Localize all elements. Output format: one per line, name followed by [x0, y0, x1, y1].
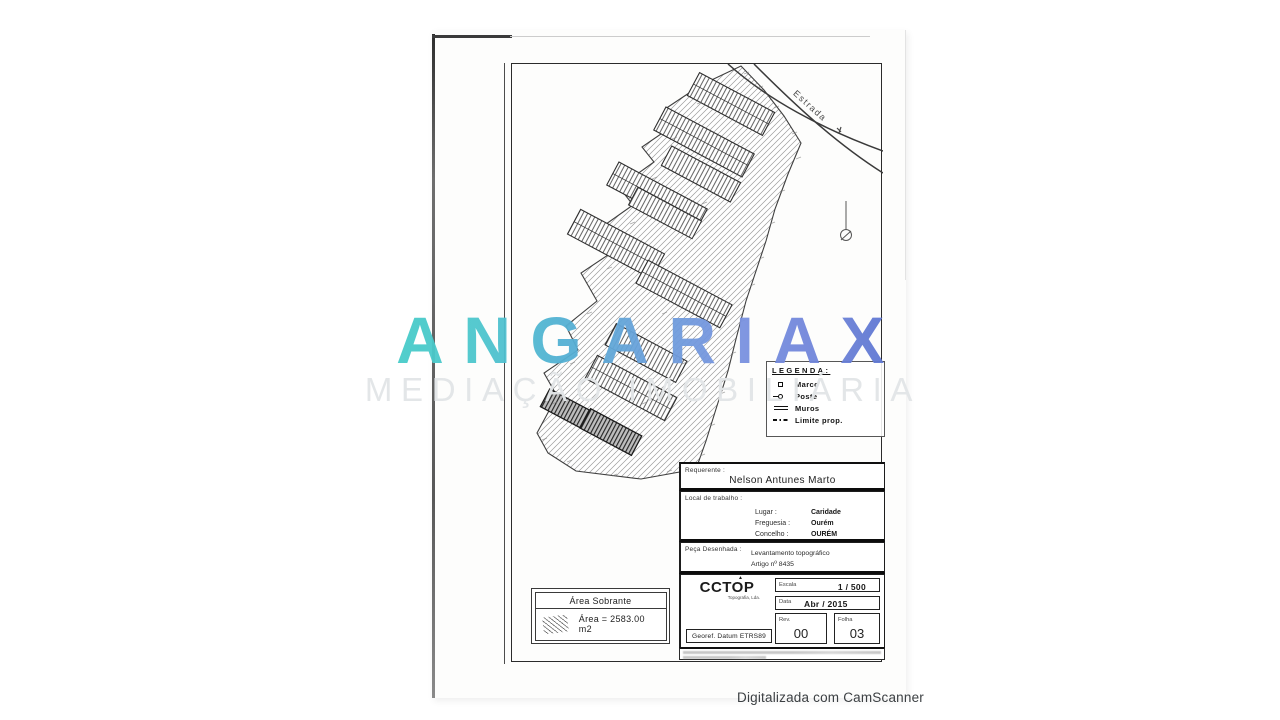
freguesia-value: Ourém: [811, 520, 834, 527]
scan-right-edge: [905, 30, 906, 280]
area-sobrante-title: Área Sobrante: [536, 593, 666, 609]
area-sobrante-value: Área = 2583.00 m2: [579, 614, 659, 634]
folha-cell: Folha 03: [834, 613, 880, 644]
escala-label: Escala: [779, 582, 796, 588]
local-row-concelho: Concelho : OURÉM: [755, 529, 880, 540]
data-cell: Data Abr / 2015: [775, 596, 880, 610]
escala-value: 1 / 500: [838, 582, 866, 592]
rev-label: Rev.: [779, 617, 791, 623]
concelho-label: Concelho :: [755, 531, 811, 538]
concelho-value: OURÉM: [811, 531, 837, 538]
legend-item-limite-prop: Limite prop.: [772, 414, 879, 426]
area-sobrante-box: Área Sobrante Área = 2583.00 m2: [531, 588, 670, 644]
hatch-swatch-icon: [542, 614, 569, 634]
data-label: Data: [779, 599, 791, 605]
local-row-freguesia: Freguesia : Ourém: [755, 518, 880, 529]
data-value: Abr / 2015: [804, 599, 848, 609]
peca-desenhada-box: Peça Desenhada : Levantamento topográfic…: [679, 542, 885, 574]
camscanner-note: Digitalizada com CamScanner: [737, 690, 924, 705]
requerente-value: Nelson Antunes Marto: [681, 475, 884, 486]
georef-datum-box: Georef. Datum ETRS89: [686, 629, 772, 643]
title-block-main-row: CCTOP Topografia, Lda. Georef. Datum ETR…: [679, 574, 885, 647]
local-label: Local de trabalho :: [685, 495, 742, 502]
peca-value-line2: Artigo nº 8435: [751, 560, 830, 571]
watermark-subtitle: MEDIAÇÃO IMOBILIÁRIA: [365, 371, 921, 409]
requerente-label: Requerente :: [685, 467, 725, 474]
rev-value: 00: [776, 626, 826, 641]
freguesia-label: Freguesia :: [755, 520, 811, 527]
peca-value-line1: Levantamento topográfico: [751, 549, 830, 560]
utility-pole-icon: [841, 201, 852, 241]
peca-label: Peça Desenhada :: [685, 546, 742, 553]
rev-cell: Rev. 00: [775, 613, 827, 644]
contact-info-strip-illegible: [679, 647, 885, 660]
scan-top-edge-mark: [432, 35, 512, 38]
lugar-label: Lugar :: [755, 509, 811, 516]
legend-label: Limite prop.: [795, 416, 843, 425]
lugar-value: Caridade: [811, 509, 841, 516]
folha-label: Folha: [838, 617, 853, 623]
escala-cell: Escala 1 / 500: [775, 578, 880, 592]
limite-prop-symbol-icon: [772, 419, 789, 420]
scan-top-edge-line: [510, 36, 870, 37]
scanned-document-page: Estrada: [0, 0, 1280, 720]
watermark-brand: ANGARIAX: [396, 302, 904, 378]
scale-date-cells: Escala 1 / 500 Data Abr / 2015 Rev. 00: [773, 575, 884, 647]
title-block: Requerente : Nelson Antunes Marto Local …: [679, 462, 885, 660]
logo-cell: CCTOP Topografia, Lda. Georef. Datum ETR…: [681, 575, 773, 647]
folha-value: 03: [835, 626, 879, 641]
local-row-lugar: Lugar : Caridade: [755, 507, 880, 518]
local-de-trabalho-box: Local de trabalho : Lugar : Caridade Fre…: [679, 491, 885, 542]
cctop-logo: CCTOP: [681, 579, 773, 596]
requerente-box: Requerente : Nelson Antunes Marto: [679, 462, 885, 491]
